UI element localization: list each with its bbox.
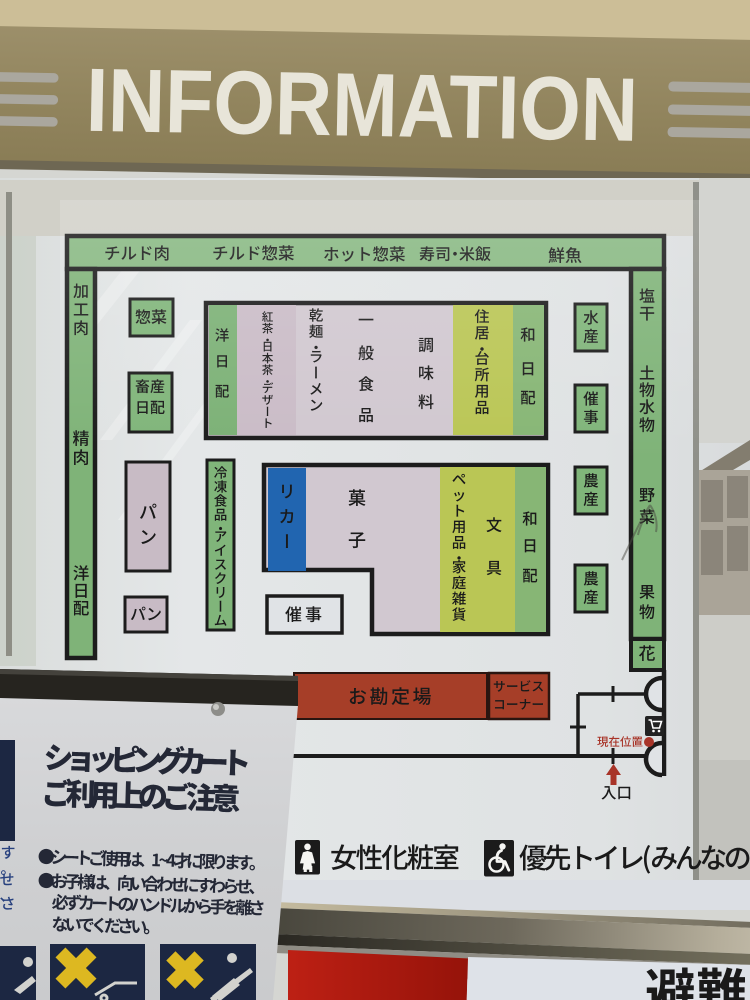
svg-text:INFORMATION: INFORMATION (85, 51, 639, 161)
